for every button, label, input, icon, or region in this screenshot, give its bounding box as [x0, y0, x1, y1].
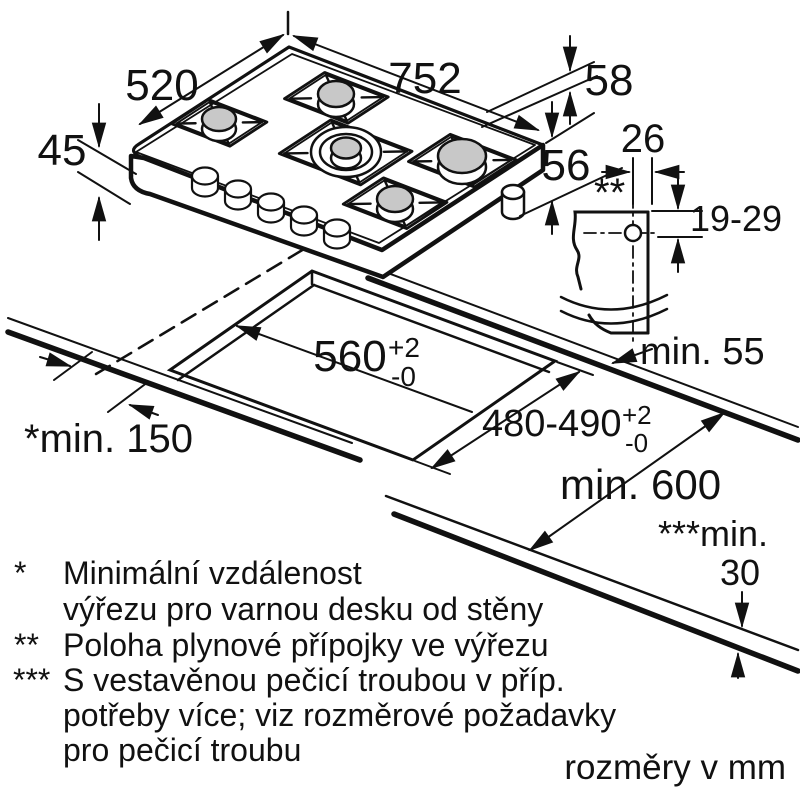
dim-cutout-width-560: 560 +2 -0 [237, 326, 472, 412]
detail-break-line [561, 295, 667, 310]
burner-cap-back-right [438, 139, 486, 184]
knob-4 [291, 207, 317, 236]
dim-gas-offset-label: 26 [621, 117, 666, 161]
knob-5 [324, 220, 350, 249]
knob-1 [192, 168, 218, 197]
detail-break-line2 [561, 309, 667, 324]
gas-detail-marker: ** [594, 171, 625, 215]
detail-outline-top [573, 212, 648, 289]
footnote-1-line-1: Minimální vzdálenost [63, 556, 362, 591]
knob-2 [225, 181, 251, 210]
units-note: rozměry v mm [564, 748, 786, 788]
dim-gas-range-19-29: 19-29 [652, 174, 782, 272]
dim-cutout-depth-label: 480-490 [482, 403, 621, 445]
dim-gas-range-label: 19-29 [690, 198, 782, 239]
dim-cutout-depth-480-490: 480-490 +2 -0 [415, 362, 652, 474]
knob-3 [258, 194, 284, 223]
dim-worktop-depth-label: min. 600 [560, 461, 721, 508]
dim-rear-clearance-label: min. 55 [640, 331, 765, 373]
footnote-3-line-3: pro pečicí troubu [63, 733, 301, 768]
dim-grate-label: 58 [585, 56, 634, 105]
dim-cutout-depth-tol-plus: +2 [622, 400, 652, 430]
dim-height-45: 45 [38, 104, 136, 240]
dim-cutout-width-label: 560 [313, 332, 386, 381]
burner-cap-wok [311, 127, 381, 177]
burner-cap-back [318, 81, 354, 117]
gas-pipe-leg [502, 185, 524, 219]
dim-oven-gap-value: 30 [720, 552, 760, 593]
footnote-2-line-1: Poloha plynové přípojky ve výřezu [63, 628, 549, 663]
dim-connection-label: 56 [542, 141, 591, 190]
gas-connection-detail [561, 196, 667, 341]
dim-wall-clearance-label: *min. 150 [24, 417, 193, 461]
burner-cap-front-right [377, 186, 413, 222]
dim-cutout-width-tol-plus: +2 [388, 332, 420, 363]
dim-cutout-depth-tol-minus: -0 [625, 428, 648, 458]
dim-height-label: 45 [38, 126, 87, 175]
installation-diagram: 520 752 45 58 56 [0, 0, 800, 800]
footnote-2-marker: ** [14, 628, 39, 663]
dim-cutout-width-tol-minus: -0 [391, 361, 416, 392]
footnote-1-marker: * [14, 556, 26, 591]
dim-gas-offset-26: 26 ** [594, 117, 684, 215]
burner-cap-left [202, 107, 236, 141]
footnote-3-marker: *** [13, 663, 50, 698]
footnote-3-line-1: S vestavěnou pečicí troubou v příp. [63, 663, 565, 698]
gas-connection-point [625, 225, 641, 241]
dim-oven-gap-prefix: ***min. [658, 513, 768, 554]
footnote-1-line-2: výřezu pro varnou desku od stěny [63, 592, 543, 627]
dim-grate-58: 58 [482, 36, 633, 127]
dim-depth-label: 520 [125, 61, 198, 110]
footnote-3-line-2: potřeby více; viz rozměrové požadavky [63, 698, 616, 733]
wall-dashed-line [96, 231, 334, 374]
dim-width-label: 752 [388, 54, 461, 103]
